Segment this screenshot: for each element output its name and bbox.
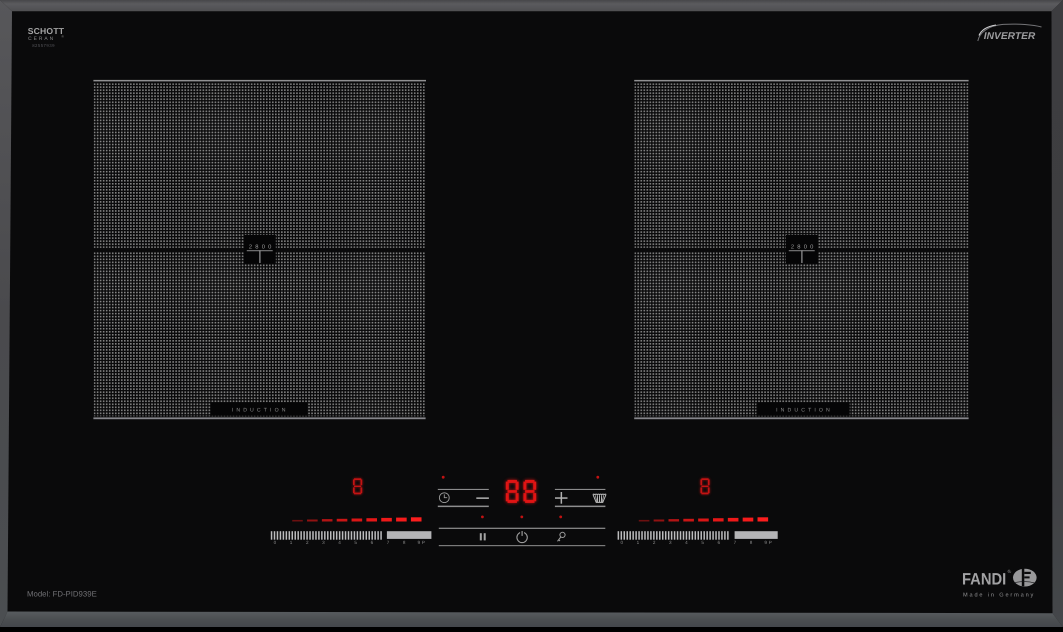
svg-text:P: P: [769, 540, 772, 545]
svg-text:CERAN: CERAN: [28, 36, 55, 42]
svg-text:8: 8: [403, 540, 406, 545]
svg-text:9: 9: [764, 540, 767, 545]
svg-text:INDUCTION: INDUCTION: [776, 407, 833, 413]
svg-text:Made in Germany: Made in Germany: [963, 592, 1035, 599]
svg-text:9: 9: [418, 540, 421, 545]
svg-text:2: 2: [306, 540, 309, 545]
svg-text:5: 5: [701, 540, 704, 545]
svg-text:1: 1: [637, 540, 640, 545]
svg-text:INDUCTION: INDUCTION: [232, 407, 289, 413]
svg-text:7: 7: [387, 540, 390, 545]
svg-text:6: 6: [717, 540, 720, 545]
svg-text:3: 3: [669, 540, 672, 545]
svg-text:0: 0: [274, 540, 277, 545]
svg-text:2800: 2800: [791, 244, 817, 251]
svg-text:INVERTER: INVERTER: [984, 31, 1036, 42]
svg-text:6: 6: [371, 540, 374, 545]
svg-text:4: 4: [338, 540, 341, 545]
svg-text:SCHOTT: SCHOTT: [28, 26, 65, 36]
svg-text:2800: 2800: [249, 244, 275, 251]
svg-text:Model: FD-PID939E: Model: FD-PID939E: [27, 589, 97, 598]
svg-text:3: 3: [322, 540, 325, 545]
svg-text:5: 5: [354, 540, 357, 545]
svg-text:1: 1: [290, 540, 293, 545]
svg-text:8: 8: [750, 540, 753, 545]
svg-text:FANDI: FANDI: [962, 570, 1006, 588]
svg-text:7: 7: [734, 540, 737, 545]
svg-text:2: 2: [653, 540, 656, 545]
svg-text:P: P: [422, 540, 425, 545]
svg-text:0: 0: [621, 540, 624, 545]
svg-text:82557939: 82557939: [32, 43, 55, 48]
svg-text:4: 4: [685, 540, 688, 545]
